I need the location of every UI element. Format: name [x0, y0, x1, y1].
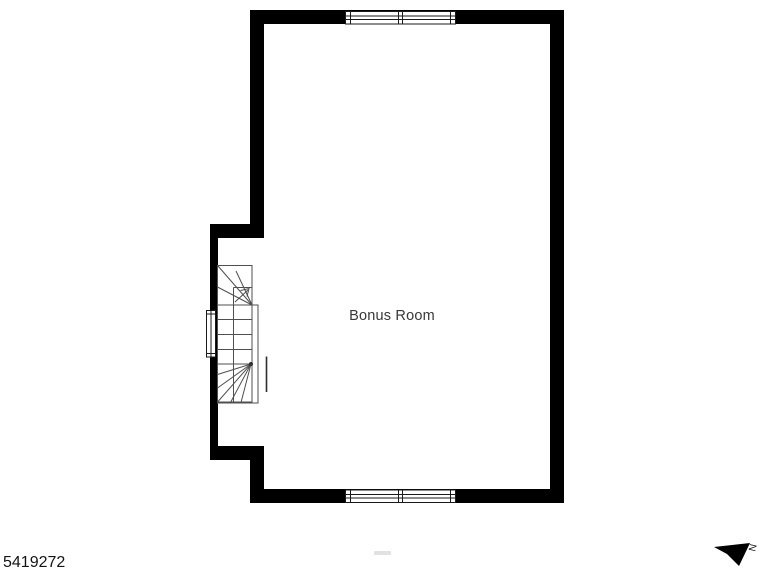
watermark-mark [374, 551, 391, 555]
window-bottom [346, 490, 456, 503]
wall-notch-top [210, 224, 264, 238]
window-left [207, 311, 216, 358]
wall-left-upper [250, 10, 264, 238]
floorplan-canvas: N Bonus Room 5419272 [0, 0, 768, 576]
exterior-walls [210, 10, 564, 503]
wall-right [550, 10, 564, 503]
stair-newel-dot [249, 362, 253, 366]
window-top [346, 12, 456, 25]
floorplan-drawing: N [0, 0, 768, 576]
north-arrow-icon: N [714, 543, 758, 566]
plan-id: 5419272 [3, 554, 65, 572]
staircase [218, 266, 267, 404]
room-label: Bonus Room [349, 308, 435, 324]
wall-left-lower [250, 446, 264, 503]
north-label: N [746, 543, 758, 553]
